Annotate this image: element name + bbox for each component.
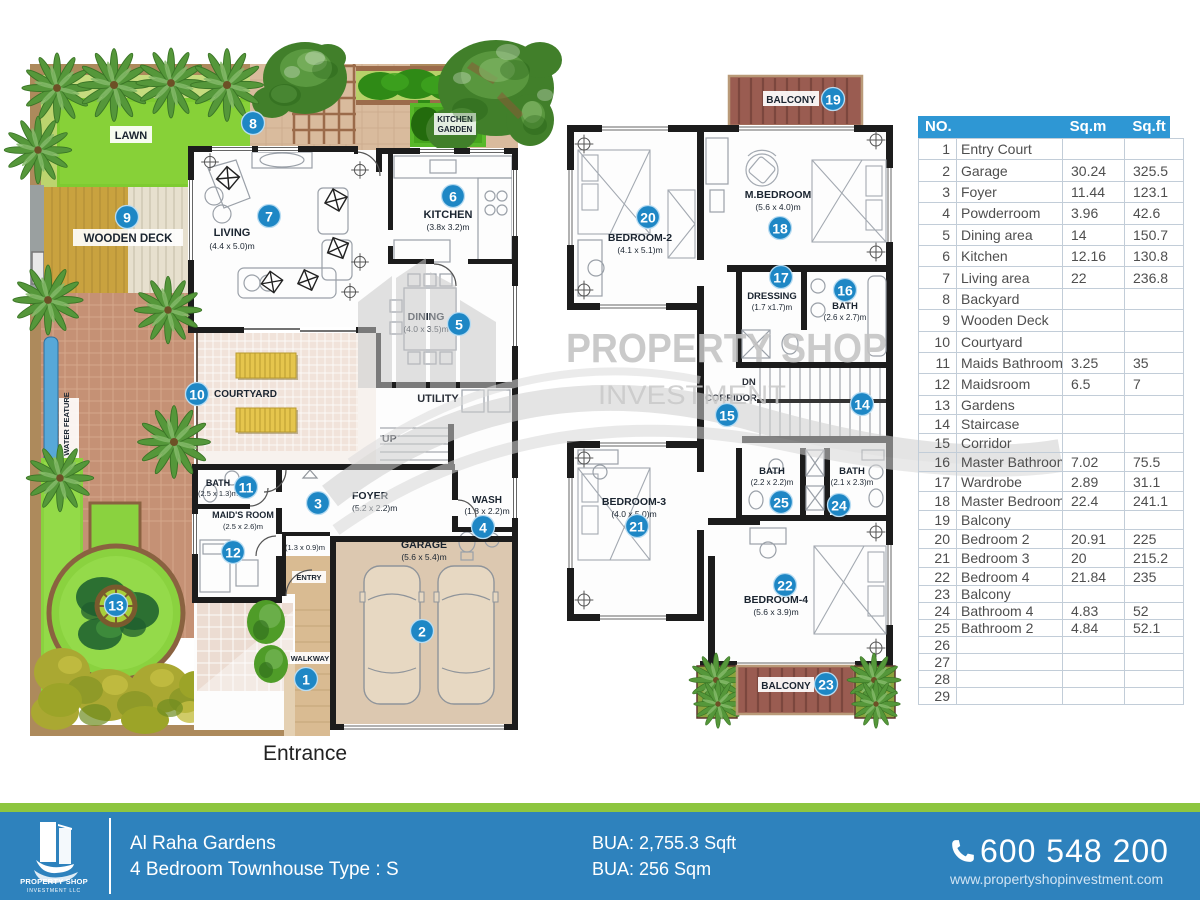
svg-text:(5.6 x 3.9)m: (5.6 x 3.9)m bbox=[753, 607, 798, 617]
svg-text:BATH: BATH bbox=[832, 301, 858, 312]
svg-text:LIVING: LIVING bbox=[214, 227, 251, 239]
svg-text:3: 3 bbox=[314, 496, 322, 512]
svg-text:(1.7 x1.7)m: (1.7 x1.7)m bbox=[752, 303, 793, 312]
svg-text:15: 15 bbox=[719, 408, 735, 424]
svg-text:(5.6 x 5.4)m: (5.6 x 5.4)m bbox=[401, 552, 446, 562]
svg-text:8: 8 bbox=[249, 116, 257, 132]
svg-text:2: 2 bbox=[418, 624, 426, 640]
svg-text:PROPERTY SHOP: PROPERTY SHOP bbox=[566, 325, 887, 371]
svg-text:COURTYARD: COURTYARD bbox=[214, 389, 277, 400]
svg-text:21: 21 bbox=[629, 519, 645, 535]
svg-text:25: 25 bbox=[773, 495, 789, 511]
svg-text:5: 5 bbox=[455, 317, 463, 333]
svg-text:(4.1 x 5.1)m: (4.1 x 5.1)m bbox=[617, 245, 662, 255]
svg-text:18: 18 bbox=[772, 221, 788, 237]
svg-text:BALCONY: BALCONY bbox=[766, 95, 816, 106]
svg-text:7: 7 bbox=[265, 209, 273, 225]
svg-text:DRESSING: DRESSING bbox=[747, 291, 797, 302]
svg-text:(2.2 x 2.2)m: (2.2 x 2.2)m bbox=[751, 478, 794, 487]
svg-text:(2.6 x 2.7)m: (2.6 x 2.7)m bbox=[824, 313, 867, 322]
svg-text:(1.3 x 0.9)m: (1.3 x 0.9)m bbox=[285, 543, 325, 552]
svg-text:BEDROOM-3: BEDROOM-3 bbox=[602, 496, 666, 508]
svg-text:GARDEN: GARDEN bbox=[438, 125, 473, 134]
svg-text:Entrance: Entrance bbox=[263, 742, 347, 765]
svg-text:BALCONY: BALCONY bbox=[761, 681, 811, 692]
svg-text:10: 10 bbox=[189, 387, 205, 403]
svg-text:11: 11 bbox=[239, 480, 254, 496]
svg-text:(5.6 x 4.0)m: (5.6 x 4.0)m bbox=[755, 202, 800, 212]
svg-text:9: 9 bbox=[123, 210, 131, 226]
svg-text:BATH: BATH bbox=[839, 466, 865, 477]
svg-text:INVESTMENT LLC: INVESTMENT LLC bbox=[27, 888, 81, 894]
svg-text:M.BEDROOM: M.BEDROOM bbox=[745, 189, 812, 201]
svg-text:13: 13 bbox=[108, 598, 124, 614]
svg-text:LAWN: LAWN bbox=[115, 130, 147, 142]
svg-text:BATH: BATH bbox=[759, 466, 785, 477]
svg-text:22: 22 bbox=[777, 578, 793, 594]
svg-text:12: 12 bbox=[225, 545, 241, 561]
svg-text:BEDROOM-2: BEDROOM-2 bbox=[608, 232, 672, 244]
svg-text:WATER FEATURE: WATER FEATURE bbox=[62, 392, 71, 455]
svg-text:4: 4 bbox=[479, 520, 487, 536]
svg-text:(2.5 x 1.3)m: (2.5 x 1.3)m bbox=[198, 489, 238, 498]
svg-text:6: 6 bbox=[449, 189, 457, 205]
svg-text:BEDROOM-4: BEDROOM-4 bbox=[744, 594, 808, 606]
svg-text:BATH: BATH bbox=[206, 478, 230, 488]
svg-text:24: 24 bbox=[831, 498, 847, 514]
svg-text:KITCHEN: KITCHEN bbox=[424, 209, 473, 221]
svg-text:16: 16 bbox=[837, 283, 853, 299]
svg-text:14: 14 bbox=[854, 397, 870, 413]
svg-text:(1.8 x 2.2)m: (1.8 x 2.2)m bbox=[464, 506, 509, 516]
svg-text:17: 17 bbox=[773, 270, 789, 286]
svg-text:WALKWAY: WALKWAY bbox=[291, 654, 329, 663]
svg-text:INVESTMENT: INVESTMENT bbox=[598, 380, 786, 410]
svg-text:(4.4 x 5.0)m: (4.4 x 5.0)m bbox=[209, 241, 254, 251]
svg-text:(2.5 x 2.6)m: (2.5 x 2.6)m bbox=[223, 522, 263, 531]
svg-text:(3.8x 3.2)m: (3.8x 3.2)m bbox=[427, 222, 470, 232]
svg-text:ENTRY: ENTRY bbox=[296, 573, 321, 582]
svg-text:23: 23 bbox=[818, 677, 834, 693]
svg-text:PROPERTY SHOP: PROPERTY SHOP bbox=[20, 877, 88, 886]
svg-text:WASH: WASH bbox=[472, 495, 502, 506]
svg-text:MAID'S ROOM: MAID'S ROOM bbox=[212, 510, 274, 520]
svg-text:WOODEN DECK: WOODEN DECK bbox=[84, 233, 174, 245]
svg-text:20: 20 bbox=[640, 210, 656, 226]
svg-text:19: 19 bbox=[825, 92, 841, 108]
svg-text:1: 1 bbox=[302, 672, 310, 688]
svg-text:(2.1 x 2.3)m: (2.1 x 2.3)m bbox=[831, 478, 874, 487]
